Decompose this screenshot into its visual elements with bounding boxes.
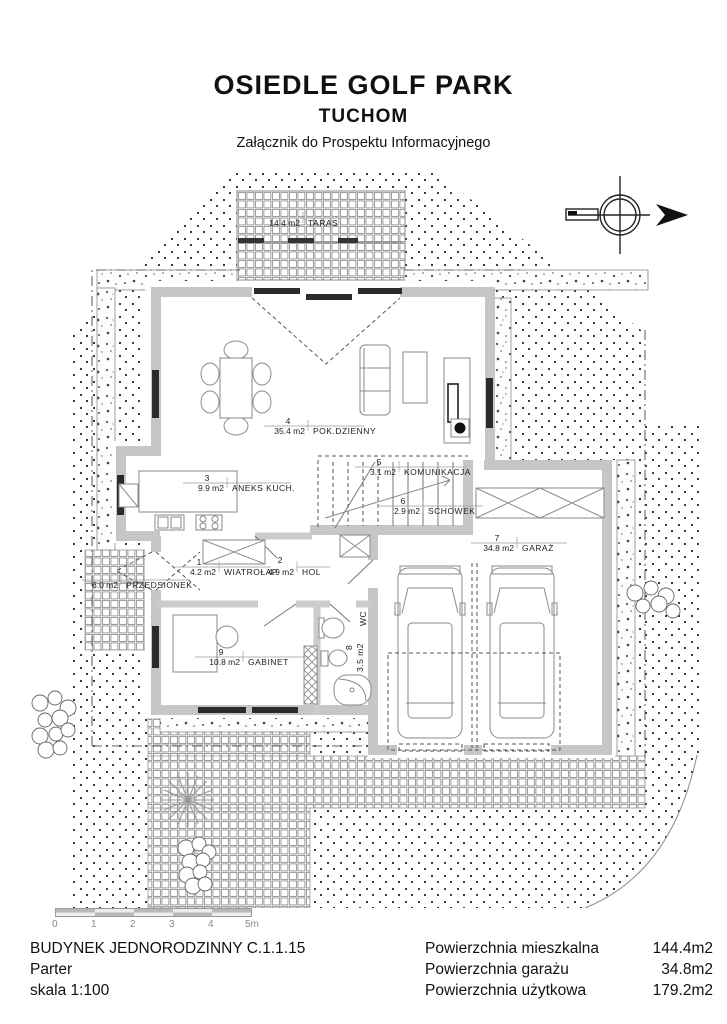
svg-text:WC: WC — [358, 611, 368, 626]
floor-name: Parter — [30, 959, 305, 980]
svg-text:5: 5 — [377, 457, 382, 467]
sofa — [360, 345, 390, 415]
svg-text:GABINET: GABINET — [248, 657, 289, 667]
svg-text:34.8 m2: 34.8 m2 — [483, 543, 514, 553]
svg-text:4: 4 — [286, 416, 291, 426]
area-value: 34.8m2 — [661, 959, 713, 980]
area-row: Powierzchnia garażu 34.8m2 — [425, 959, 713, 980]
svg-text:SCHOWEK: SCHOWEK — [428, 506, 475, 516]
svg-text:GARAŻ: GARAŻ — [522, 543, 554, 553]
area-label: Powierzchnia garażu — [425, 959, 569, 980]
svg-text:3.1 m2: 3.1 m2 — [370, 467, 396, 477]
shaft-crosshatch — [304, 646, 317, 704]
svg-text:PRZEDSIONEK: PRZEDSIONEK — [126, 580, 192, 590]
page-note: Załącznik do Prospektu Informacyjnego — [0, 135, 727, 151]
terrace-paving — [237, 191, 405, 280]
svg-text:ANEKS KUCH.: ANEKS KUCH. — [232, 483, 295, 493]
page-subtitle: TUCHOM — [0, 106, 727, 128]
area-value: 179.2m2 — [653, 980, 713, 1001]
header: OSIEDLE GOLF PARK TUCHOM Załącznik do Pr… — [0, 70, 727, 151]
coffee-table — [403, 352, 427, 403]
footer-areas: Powierzchnia mieszkalna 144.4m2 Powierzc… — [425, 938, 713, 1001]
svg-text:POK.DZIENNY: POK.DZIENNY — [313, 426, 376, 436]
svg-text:9.9 m2: 9.9 m2 — [198, 483, 224, 493]
scale-bar — [55, 908, 252, 917]
building-id: BUDYNEK JEDNORODZINNY C.1.1.15 — [30, 938, 305, 959]
svg-text:2.9 m2: 2.9 m2 — [394, 506, 420, 516]
page-title: OSIEDLE GOLF PARK — [0, 70, 727, 101]
svg-text:10.8 m2: 10.8 m2 — [209, 657, 240, 667]
area-label: Powierzchnia użytkowa — [425, 980, 586, 1001]
svg-text:4.2 m2: 4.2 m2 — [190, 567, 216, 577]
footer-left: BUDYNEK JEDNORODZINNY C.1.1.15 Parter sk… — [30, 938, 305, 1001]
svg-text:2: 2 — [278, 555, 283, 565]
svg-text:7: 7 — [495, 533, 500, 543]
svg-text:9: 9 — [219, 647, 224, 657]
area-row: Powierzchnia użytkowa 179.2m2 — [425, 980, 713, 1001]
fireplace — [451, 419, 469, 437]
driveway-paving — [148, 756, 645, 808]
svg-text:4.9 m2: 4.9 m2 — [268, 567, 294, 577]
north-arrow-icon — [566, 176, 688, 254]
scale-bar-ticks: 0 1 2 3 4 5m — [55, 919, 315, 933]
svg-text:6: 6 — [401, 496, 406, 506]
area-row: Powierzchnia mieszkalna 144.4m2 — [425, 938, 713, 959]
svg-text:6.0 m2: 6.0 m2 — [92, 580, 118, 590]
svg-text:KOMUNIKACJA: KOMUNIKACJA — [404, 467, 471, 477]
tree — [162, 773, 214, 827]
floorplan-page: OSIEDLE GOLF PARK TUCHOM Załącznik do Pr… — [0, 0, 727, 1024]
drawing-scale: skala 1:100 — [30, 980, 305, 1001]
svg-text:35.4 m2: 35.4 m2 — [274, 426, 305, 436]
svg-text:3.5 m2: 3.5 m2 — [355, 643, 365, 672]
area-value: 144.4m2 — [653, 938, 713, 959]
floorplan-drawing: 1 4.2 m2 WIATROŁAP 2 4.9 m2 HOL 3 9.9 m2… — [0, 158, 727, 908]
svg-text:8: 8 — [344, 645, 354, 650]
svg-text:TARAS: TARAS — [308, 218, 338, 228]
svg-text:HOL: HOL — [302, 567, 321, 577]
svg-text:1: 1 — [197, 557, 202, 567]
area-label: Powierzchnia mieszkalna — [425, 938, 599, 959]
svg-text:3: 3 — [205, 473, 210, 483]
svg-text:14.4 m2: 14.4 m2 — [269, 218, 300, 228]
